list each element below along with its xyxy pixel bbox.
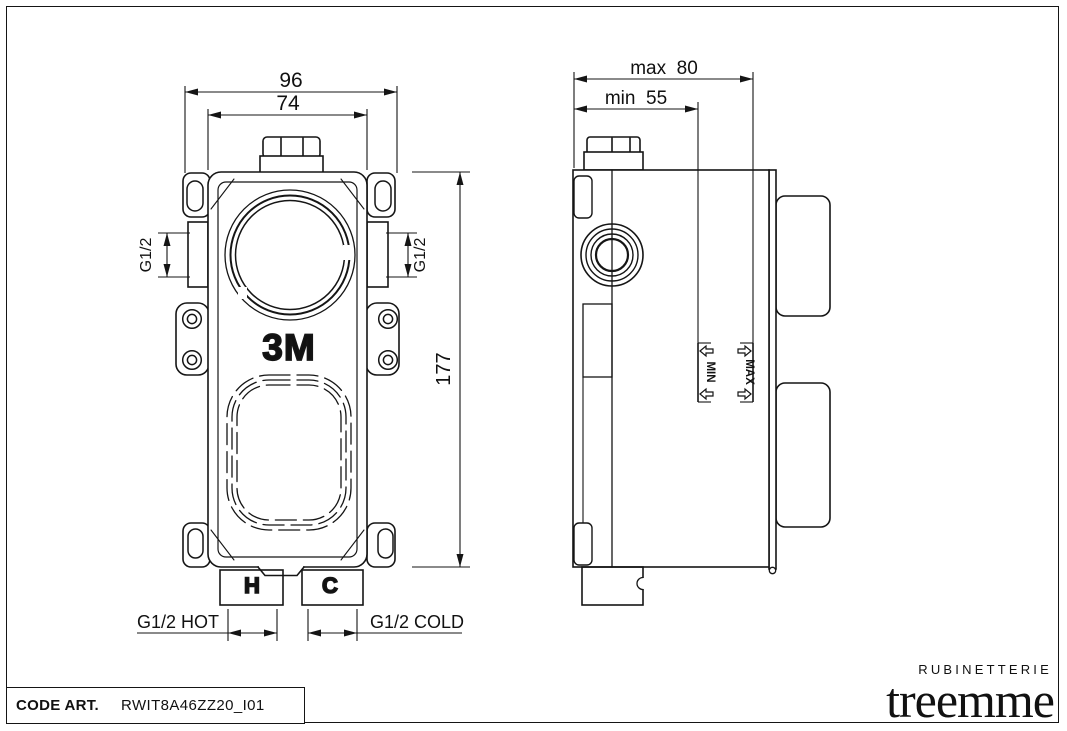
front-view: 3M H C (176, 137, 399, 605)
side-tab-top (574, 176, 592, 218)
port-left (188, 222, 208, 287)
back-plate (769, 170, 776, 569)
code-art-value: RWIT8A46ZZ20_I01 (121, 697, 265, 714)
dim-width-outer: 96 (279, 69, 302, 92)
hot-port-marking: H (244, 573, 260, 598)
back-plate-tip (769, 567, 775, 573)
side-tab-bottom (574, 523, 592, 565)
side-view (573, 137, 830, 605)
tab-mid-right (366, 303, 399, 375)
thread-right-label: G1/2 (412, 238, 429, 273)
bolt-collar (584, 152, 643, 170)
title-block: CODE ART. RWIT8A46ZZ20_I01 (6, 687, 305, 724)
dim-depth-max: max 80 (630, 58, 698, 79)
bottom-foot (582, 567, 643, 605)
marker-max-label: MAX (743, 359, 755, 385)
thread-left-label: G1/2 (138, 238, 155, 273)
marker-min-label: MIN (704, 361, 716, 382)
hex-bolt-side (584, 137, 643, 170)
body-marking-3m: 3M (262, 327, 315, 368)
code-art-label: CODE ART. (16, 697, 99, 714)
side-body-outline (573, 170, 769, 567)
foot-notch-mask (641, 578, 646, 589)
technical-drawing-page: 3M H C (0, 0, 1067, 731)
valve-body-drawing: 3M H C (0, 0, 1067, 731)
inlet-hot-label: G1/2 HOT (137, 612, 219, 632)
rear-block-top (776, 196, 830, 316)
brand-logo-name: treemme (886, 675, 1054, 725)
inlet-cold-label: G1/2 COLD (370, 612, 464, 632)
cold-port-marking: C (322, 573, 338, 598)
dim-width-inner: 74 (276, 92, 300, 115)
dim-height: 177 (433, 352, 455, 385)
rear-block-bottom (776, 383, 830, 527)
port-right (367, 222, 388, 287)
dim-depth-min: min 55 (605, 88, 667, 109)
brand-logo: RUBINETTERIE treemme (886, 663, 1054, 725)
bolt-collar (260, 156, 323, 173)
bolt-head (263, 137, 320, 158)
hex-bolt-front (260, 137, 323, 173)
